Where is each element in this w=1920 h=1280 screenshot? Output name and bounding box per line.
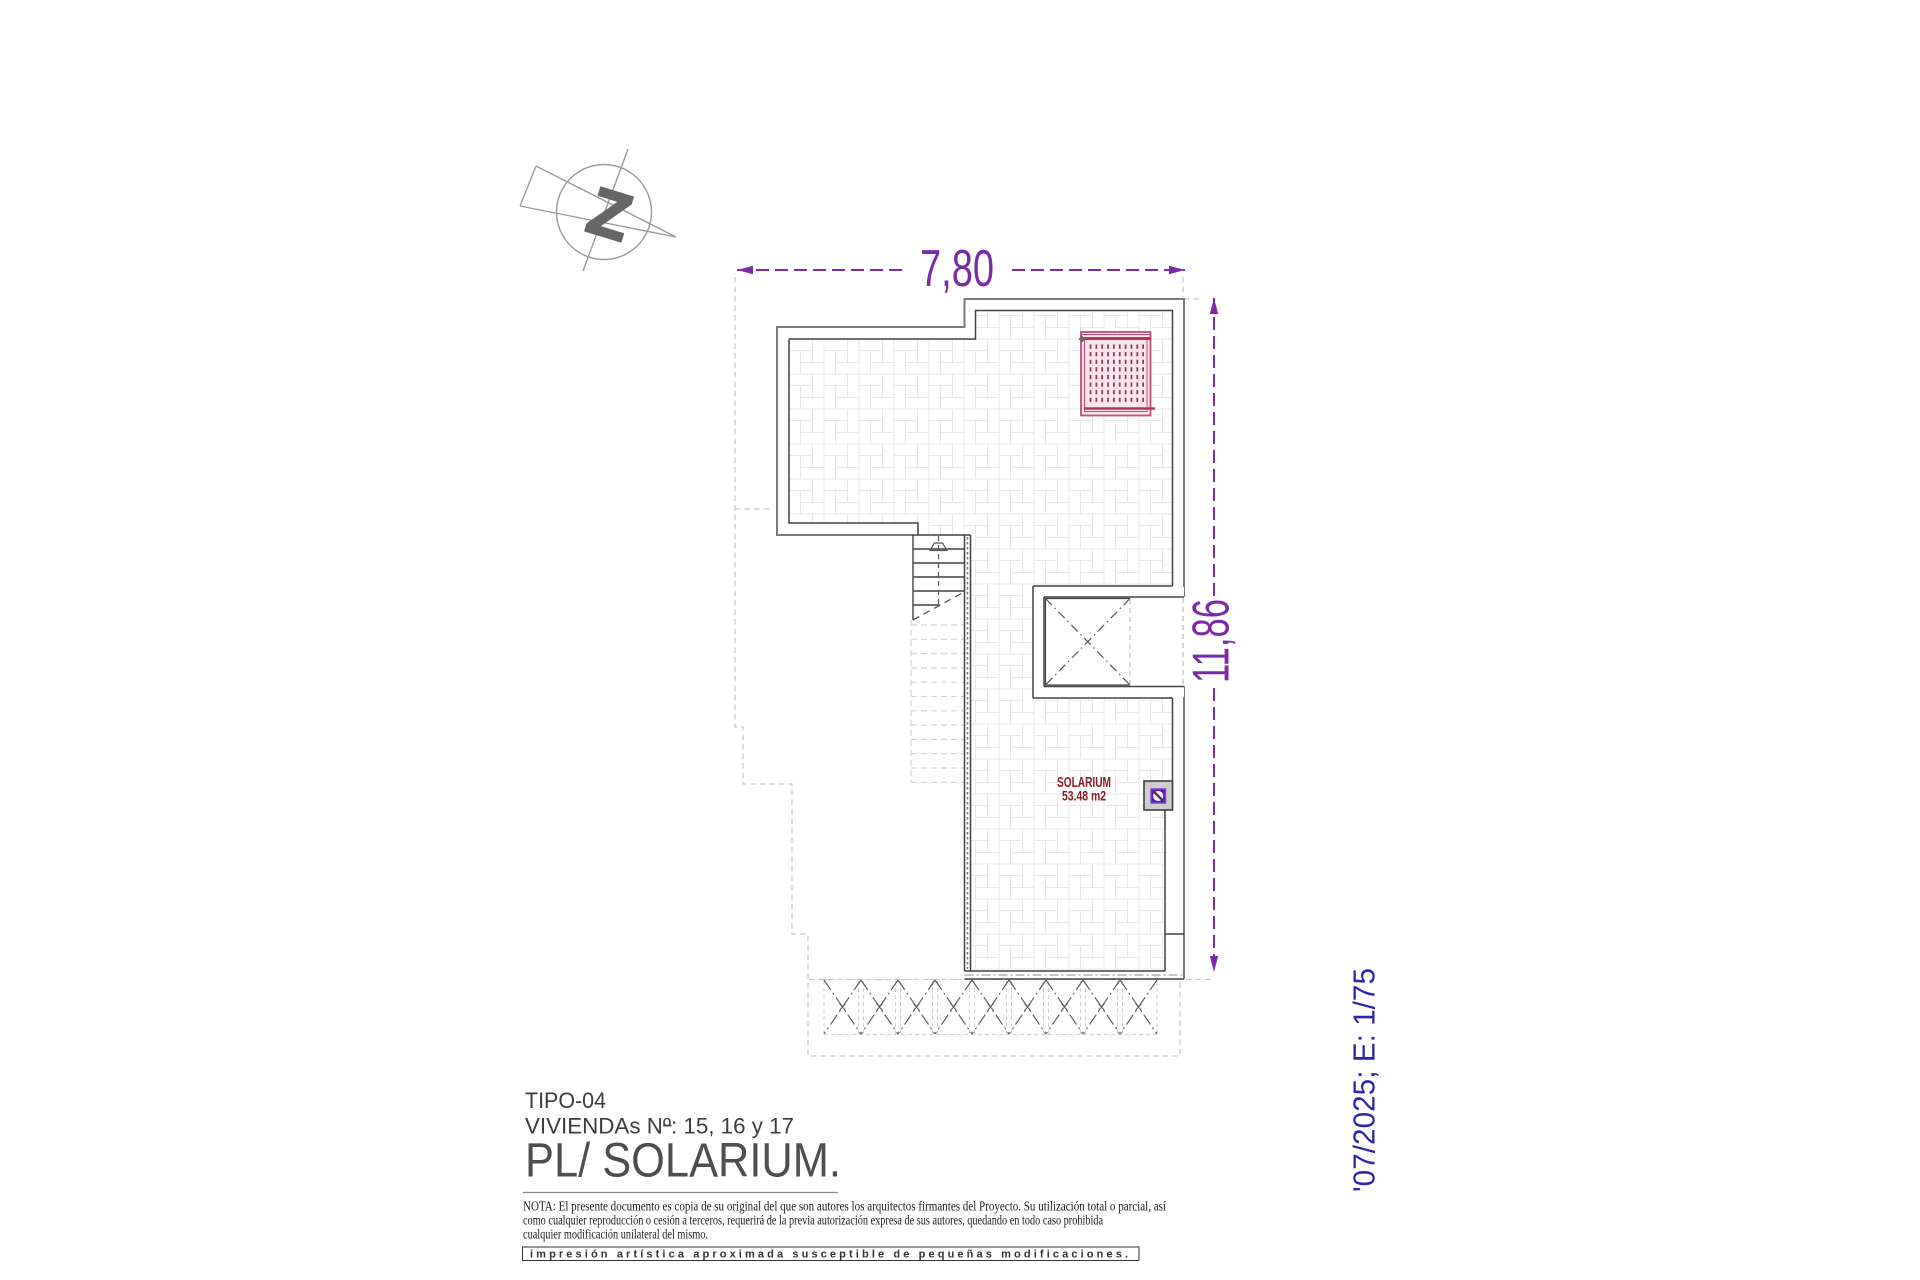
svg-text:cualquier modificación unilate: cualquier modificación unilateral del mi… bbox=[523, 1227, 708, 1242]
svg-text:NOTA: El presente documento es: NOTA: El presente documento es copia de … bbox=[523, 1199, 1166, 1214]
svg-text:7,80: 7,80 bbox=[920, 240, 994, 298]
svg-text:TIPO-04: TIPO-04 bbox=[525, 1088, 606, 1113]
svg-text:11,86: 11,86 bbox=[1183, 599, 1241, 683]
svg-text:PL/ SOLARIUM.: PL/ SOLARIUM. bbox=[525, 1135, 841, 1188]
svg-text:53.48 m2: 53.48 m2 bbox=[1062, 789, 1106, 804]
svg-text:como cualquier reproducción o: como cualquier reproducción o cesión a t… bbox=[523, 1213, 1103, 1228]
svg-text:impresión artística aproximada: impresión artística aproximada susceptib… bbox=[530, 1249, 1130, 1261]
svg-text:'07/2025; E: 1/75: '07/2025; E: 1/75 bbox=[1347, 968, 1382, 1192]
